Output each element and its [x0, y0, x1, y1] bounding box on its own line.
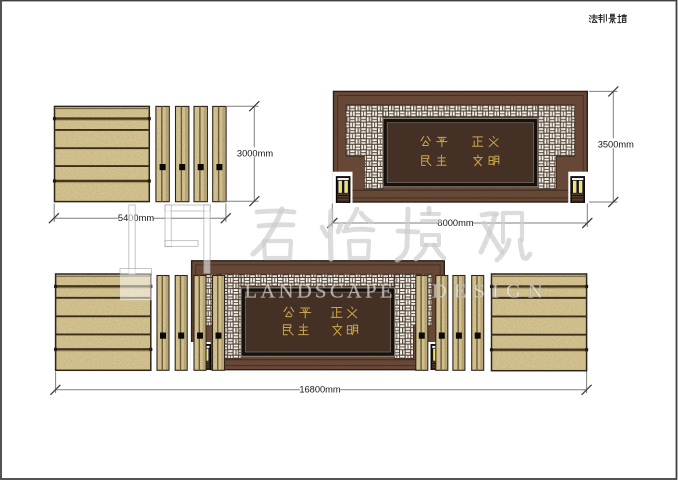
svg-text:3500mm: 3500mm — [598, 140, 634, 150]
svg-text:LANDSCAPE: LANDSCAPE — [245, 281, 396, 303]
svg-text:5400mm: 5400mm — [118, 213, 154, 223]
svg-text:DESIGN: DESIGN — [432, 281, 550, 303]
svg-text:8000mm: 8000mm — [437, 218, 473, 228]
svg-text:16800mm: 16800mm — [299, 384, 341, 394]
svg-text:3000mm: 3000mm — [237, 149, 273, 159]
